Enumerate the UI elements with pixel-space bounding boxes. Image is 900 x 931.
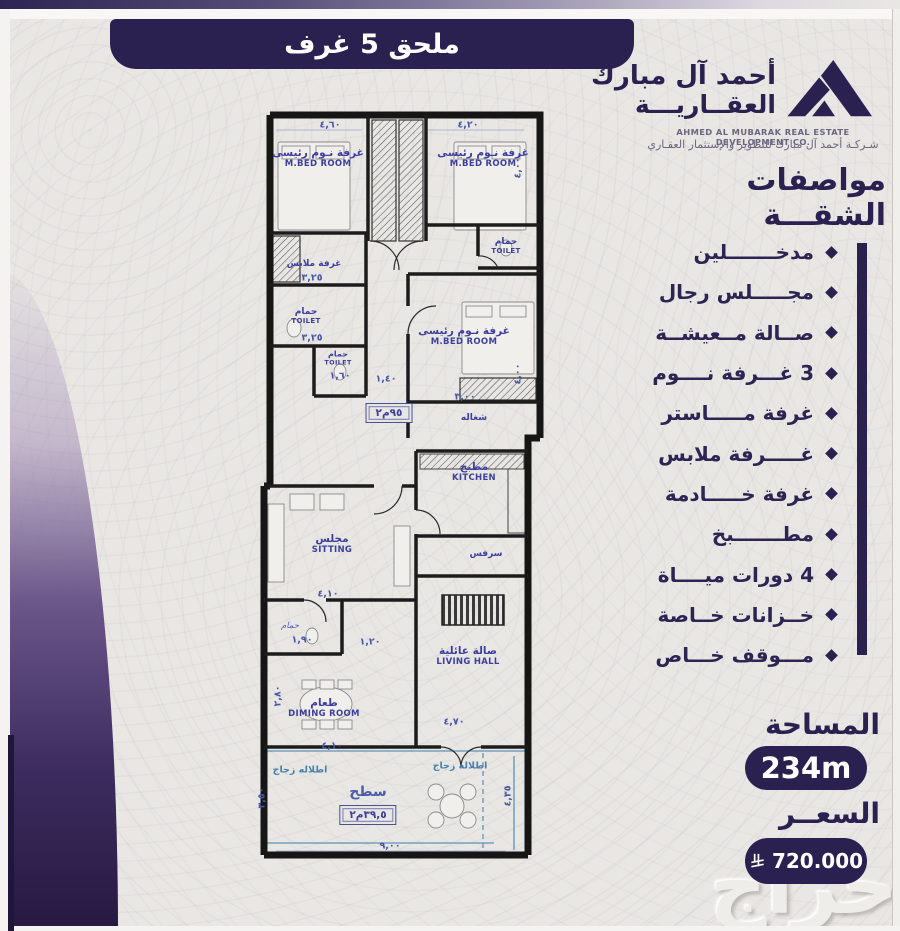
plan-dimension: ٩,٠٠ — [379, 841, 400, 852]
plan-room-label: حمامTOILET — [291, 307, 320, 325]
plan-dimension: ٤,٠٠ — [513, 157, 524, 178]
list-item: خــزانات خــاصة — [596, 595, 836, 635]
diamond-bullet-icon — [825, 568, 838, 581]
price-badge: 720.000 — [745, 838, 867, 884]
flyer-title: ملحق 5 غرف — [284, 29, 460, 60]
diamond-bullet-icon — [825, 447, 838, 460]
plan-area-box: ٣٩,٥م٢ — [339, 805, 396, 825]
plan-dimension: ٣,٥٠ — [257, 787, 268, 808]
plan-dimension: ٤,٣٥ — [503, 785, 514, 806]
plan-dimension: ٤,٢٠ — [457, 120, 478, 131]
spec-label: غرفة مـــــاستر — [661, 401, 814, 425]
list-item: 4 دورات ميــــاة — [596, 554, 836, 594]
plan-dimension: ٤,٠٠ — [513, 363, 524, 384]
floor-plan-labels: غرفة نـوم رئيسىM.BED ROOMغرفة نـوم رئيسى… — [256, 106, 548, 868]
company-name-line2: العقــاريـــة — [591, 91, 776, 119]
list-item: مجـــــلس رجال — [596, 272, 836, 312]
plan-room-label: حمامTOILET — [324, 350, 351, 367]
list-item: غـــــرفة ملابس — [596, 433, 836, 473]
specs-list: مدخـــــــلين مجـــــلس رجال صــالة مــع… — [596, 232, 836, 675]
floor-plan: غرفة نـوم رئيسىM.BED ROOMغرفة نـوم رئيسى… — [256, 106, 548, 868]
plan-dimension: ٤,٧٠ — [443, 717, 464, 728]
diamond-bullet-icon — [825, 326, 838, 339]
spec-label: صــالة مــعيشــة — [655, 321, 814, 345]
plan-room-label: شغاله — [461, 413, 487, 423]
plan-dimension: ٤,٦٠ — [319, 120, 340, 131]
top-gradient-strip — [0, 0, 900, 9]
diamond-bullet-icon — [825, 528, 838, 541]
diamond-bullet-icon — [825, 286, 838, 299]
plan-room-label: غرفة ملابس — [287, 259, 342, 269]
plan-room-label: اطلاله زجاج — [433, 761, 488, 772]
title-banner: ملحق 5 غرف — [110, 19, 634, 69]
plan-dimension: ١,٤٠ — [375, 374, 396, 385]
company-logo-icon — [784, 56, 872, 122]
list-item: مطـــــــبخ — [596, 514, 836, 554]
plan-dimension: ٣,٢٥ — [301, 333, 322, 344]
plan-room-label: حمامTOILET — [491, 237, 520, 255]
spec-label: 3 غـــرفة نــــوم — [652, 361, 814, 385]
company-name: أحمد آل مبارك العقــاريـــة — [591, 62, 776, 118]
spec-label: غـــــرفة ملابس — [658, 442, 814, 466]
diamond-bullet-icon — [825, 367, 838, 380]
plan-room-label: طعامDIMING ROOM — [288, 697, 360, 719]
plan-dimension: ١,٦٠ — [329, 371, 350, 382]
plan-dimension: ١,٩٠ — [291, 635, 312, 646]
area-label: المساحة — [680, 708, 880, 741]
plan-dimension: ٣,٠٠ — [454, 392, 475, 403]
plan-room-label: مطبخKITCHEN — [452, 461, 496, 483]
top-white-band — [0, 9, 900, 19]
diamond-bullet-icon — [825, 488, 838, 501]
specs-vertical-bar — [857, 243, 867, 655]
plan-room-label: حمام — [281, 621, 299, 631]
specs-heading: مواصفات الشقـــة — [626, 163, 886, 233]
real-estate-flyer: ملحق 5 غرف أحمد آل مبارك العقــاريـــة A… — [0, 0, 900, 931]
area-value: 234m — [761, 751, 852, 785]
plan-room-label: صالة عائليةLIVING HALL — [436, 645, 499, 667]
spec-label: مدخـــــــلين — [693, 240, 814, 264]
spec-label: 4 دورات ميــــاة — [658, 563, 814, 587]
spec-label: مطـــــــبخ — [712, 522, 814, 546]
list-item: غرفة خـــــادمة — [596, 474, 836, 514]
bottom-frame-edge — [0, 926, 900, 931]
area-badge: 234m — [745, 746, 867, 790]
saudi-riyal-icon — [749, 852, 766, 870]
diamond-bullet-icon — [825, 407, 838, 420]
list-item: مـــوقف خـــاص — [596, 635, 836, 675]
plan-dimension: ٣,٢٥ — [301, 273, 322, 284]
plan-room-label: اطلاله زجاج — [273, 765, 328, 776]
diamond-bullet-icon — [825, 246, 838, 259]
list-item: صــالة مــعيشــة — [596, 313, 836, 353]
plan-room-label: سرفس — [469, 549, 502, 559]
list-item: 3 غـــرفة نــــوم — [596, 353, 836, 393]
plan-room-label: سطح — [349, 784, 387, 800]
price-label: السعــر — [680, 797, 880, 830]
plan-dimension: ٤,١٠ — [321, 741, 342, 752]
plan-area-box: ٩٥م٢ — [366, 403, 413, 423]
diamond-bullet-icon — [825, 608, 838, 621]
list-item: غرفة مـــــاستر — [596, 393, 836, 433]
diamond-bullet-icon — [825, 649, 838, 662]
plan-room-label: غرفة نـوم رئيسىM.BED ROOM — [418, 325, 510, 347]
price-value: 720.000 — [772, 849, 863, 873]
spec-label: غرفة خـــــادمة — [665, 482, 814, 506]
plan-dimension: ٤,١٠ — [317, 589, 338, 600]
spec-label: مجـــــلس رجال — [659, 280, 814, 304]
plan-dimension: ٢,٨٠ — [273, 685, 284, 706]
spec-label: مـــوقف خـــاص — [655, 643, 814, 667]
left-purple-gradient-shape — [0, 250, 118, 931]
right-frame-edge — [892, 9, 900, 931]
list-item: مدخـــــــلين — [596, 232, 836, 272]
plan-room-label: غرفة نـوم رئيسىM.BED ROOM — [272, 147, 364, 169]
plan-dimension: ١,٢٠ — [359, 637, 380, 648]
company-tagline-arabic: شـركـة أحمد آل مبارك للتطوير والإستثمار … — [638, 138, 888, 151]
plan-room-label: مجلسSITTING — [312, 533, 352, 555]
spec-label: خــزانات خــاصة — [657, 603, 814, 627]
left-accent-bar — [8, 735, 14, 931]
